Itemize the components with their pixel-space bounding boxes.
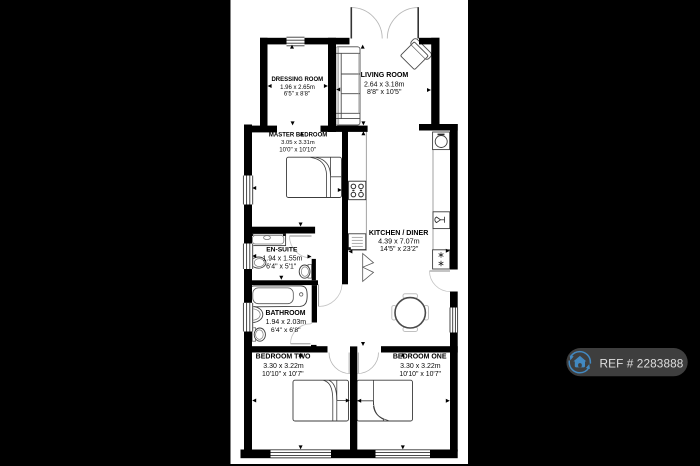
svg-text:2.64 x 3.18m: 2.64 x 3.18m — [364, 81, 405, 88]
svg-text:1.94 x 2.03m: 1.94 x 2.03m — [266, 319, 307, 326]
svg-text:10'10" x 10'7": 10'10" x 10'7" — [399, 371, 441, 378]
svg-text:3.05 x 3.31m: 3.05 x 3.31m — [281, 140, 315, 146]
svg-text:14'5" x 23'2": 14'5" x 23'2" — [380, 246, 419, 253]
svg-text:BATHROOM: BATHROOM — [265, 310, 305, 317]
svg-text:4.39 x 7.07m: 4.39 x 7.07m — [378, 237, 420, 246]
svg-text:1.96 x 2.65m: 1.96 x 2.65m — [280, 85, 315, 91]
svg-text:REF # 2283888: REF # 2283888 — [600, 357, 684, 371]
svg-text:EN-SUITE: EN-SUITE — [266, 246, 298, 253]
svg-text:LIVING ROOM: LIVING ROOM — [361, 71, 409, 79]
svg-text:6'5" x 8'8": 6'5" x 8'8" — [284, 91, 310, 97]
svg-text:BEDROOM TWO: BEDROOM TWO — [256, 353, 311, 360]
svg-text:10'10" x 10'7": 10'10" x 10'7" — [262, 371, 304, 378]
svg-text:1.94 x 1.55m: 1.94 x 1.55m — [262, 255, 302, 262]
svg-text:6'4" x 5'1": 6'4" x 5'1" — [266, 264, 297, 271]
svg-text:3.30 x 3.22m: 3.30 x 3.22m — [400, 363, 441, 370]
svg-text:MASTER BEDROOM: MASTER BEDROOM — [269, 132, 327, 138]
svg-text:3.30 x 3.22m: 3.30 x 3.22m — [263, 363, 304, 370]
svg-text:BEDROOM ONE: BEDROOM ONE — [393, 353, 447, 360]
svg-text:10'0" x 10'10": 10'0" x 10'10" — [279, 146, 316, 153]
svg-text:8'8" x 10'5": 8'8" x 10'5" — [367, 89, 402, 96]
svg-text:DRESSING ROOM: DRESSING ROOM — [271, 77, 323, 83]
svg-text:6'4" x 6'8": 6'4" x 6'8" — [271, 327, 301, 334]
